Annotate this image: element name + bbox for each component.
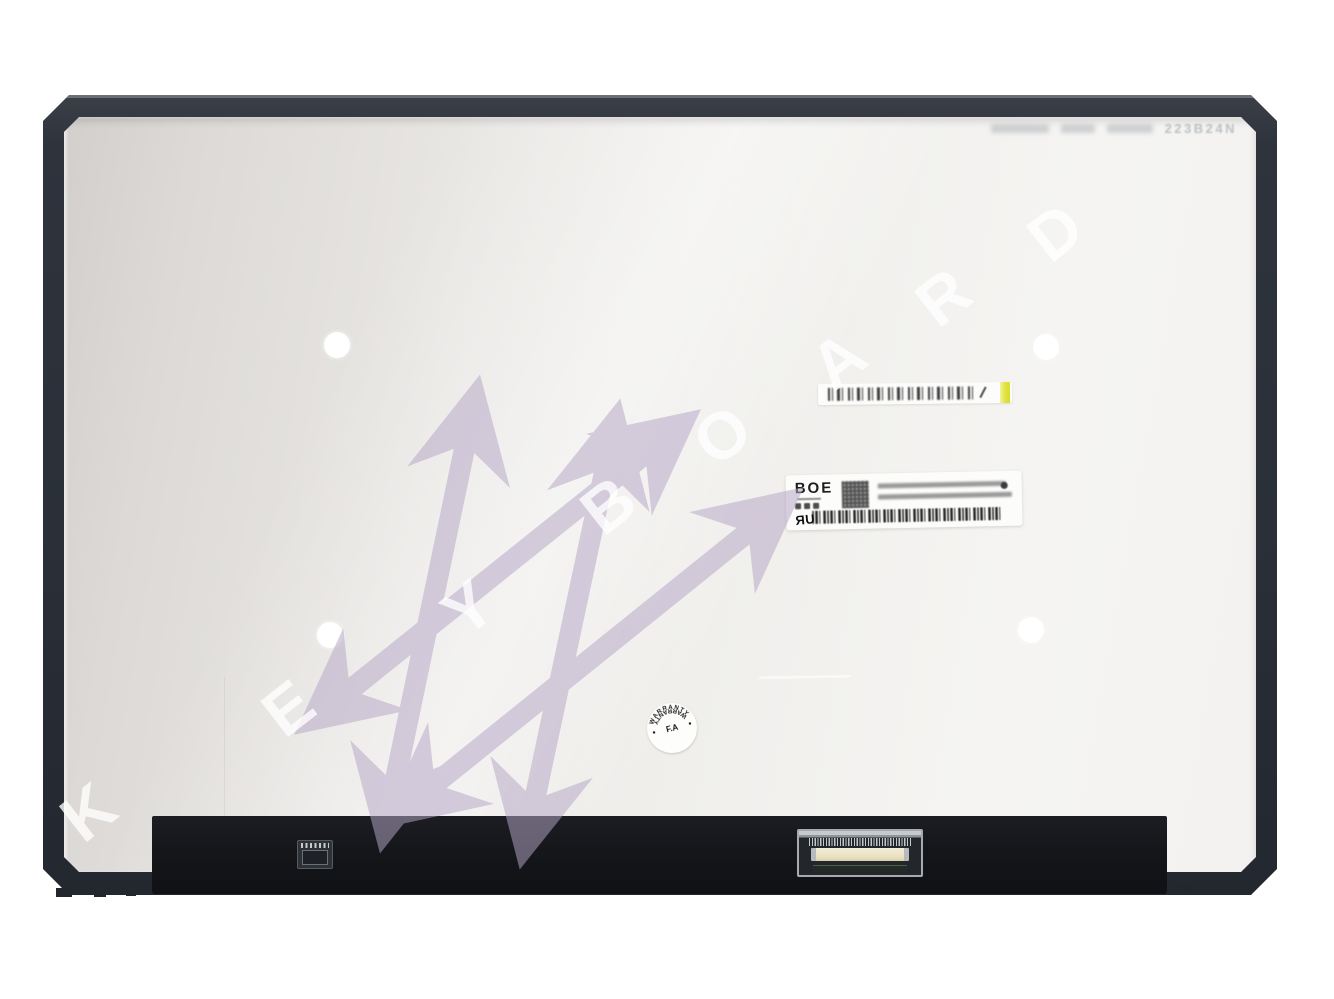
boe-logo-underline <box>797 498 821 501</box>
edp-connector <box>797 829 923 877</box>
frame-tab <box>94 891 106 897</box>
qr-code-icon <box>842 481 870 509</box>
label-blurred-text-line <box>878 481 1006 489</box>
lcd-panel-product-photo: 223B24N BOE ЯU <box>0 0 1334 999</box>
cert-mark <box>804 503 810 509</box>
aux-connector-slot <box>302 850 328 865</box>
frame-tab <box>1178 884 1196 893</box>
aux-connector-pins <box>301 843 329 848</box>
label-blurred-text-line <box>878 492 1012 500</box>
etched-text-fragment: 223B24N <box>1165 121 1237 136</box>
label-ink-dot <box>1001 482 1008 489</box>
barcode-icon <box>828 386 976 401</box>
frame-tab <box>126 891 136 896</box>
yellow-end-band <box>1000 382 1010 403</box>
etched-smear <box>1061 124 1095 133</box>
boe-spec-label: BOE ЯU <box>785 471 1022 531</box>
slash-icon <box>979 387 986 399</box>
etched-smear <box>1107 124 1153 133</box>
cert-marks-icon <box>795 503 819 510</box>
edp-connector-pins <box>809 838 911 846</box>
screw-dot-bottom-right <box>1018 617 1044 643</box>
screw-dot-top-left <box>324 332 350 358</box>
metal-scratch-mark <box>759 675 851 679</box>
etched-part-number: 223B24N <box>985 119 1237 137</box>
edp-connector-pcb-edge <box>813 865 907 872</box>
screw-dot-top-right <box>1033 334 1059 360</box>
cert-mark <box>795 503 801 509</box>
etched-smear <box>991 124 1049 133</box>
edp-connector-socket <box>811 848 909 861</box>
serial-barcode-sticker <box>818 382 1012 405</box>
panel-metal-back <box>64 117 1256 872</box>
barcode-icon <box>812 507 1000 524</box>
screw-dot-bottom-left <box>317 622 343 648</box>
cert-mark <box>813 503 819 509</box>
boe-brand-text: BOE <box>795 479 834 497</box>
aux-connector <box>297 840 333 869</box>
frame-tab <box>56 888 72 897</box>
